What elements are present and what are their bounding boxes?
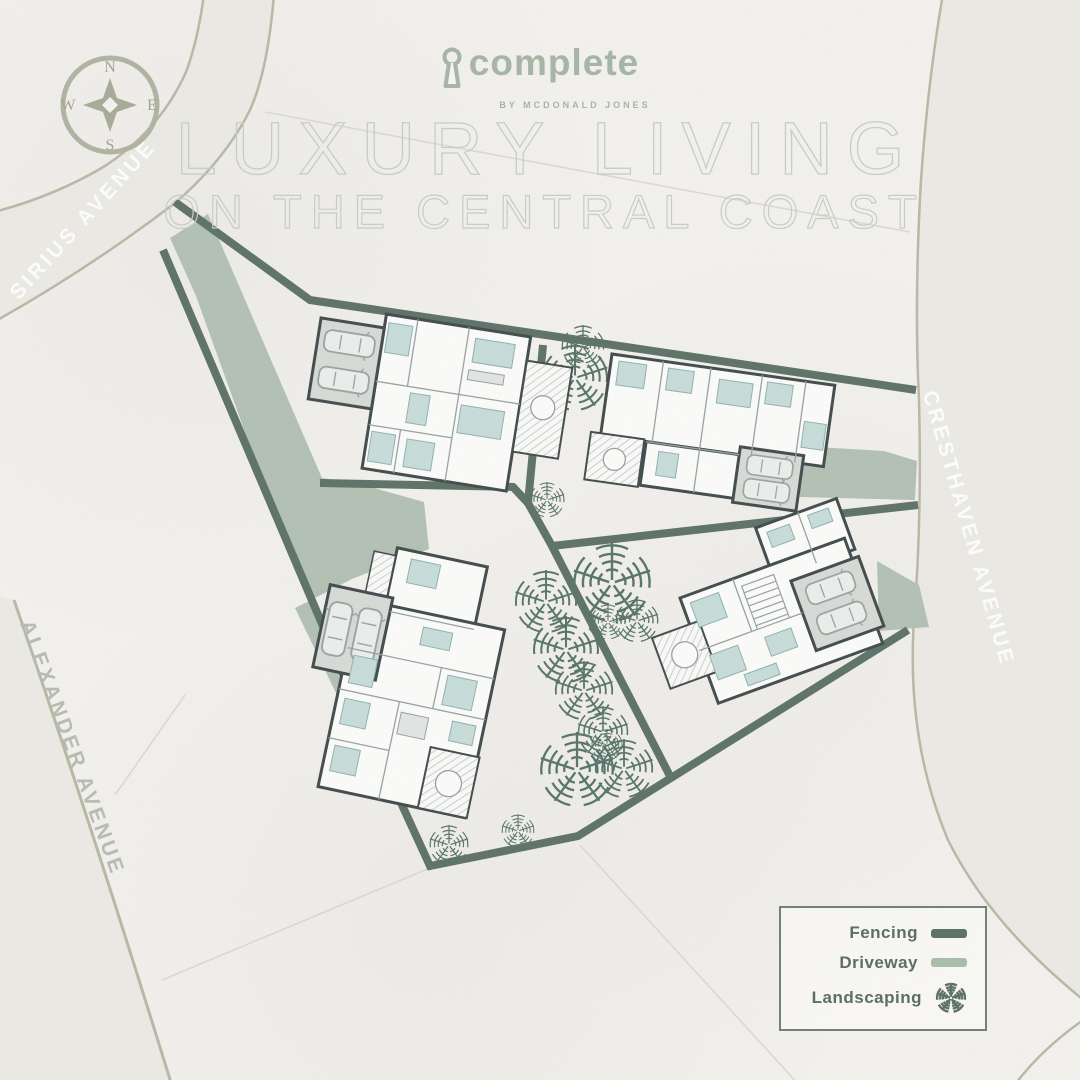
driveway-swatch-icon bbox=[931, 958, 967, 967]
site-plan-poster: { "header": { "logo": { "brand": "comple… bbox=[0, 0, 1080, 1080]
brand-byline: BY MCDONALD JONES bbox=[0, 100, 1080, 110]
legend: Fencing Driveway Landscaping bbox=[779, 906, 987, 1031]
legend-label-landscaping: Landscaping bbox=[812, 988, 922, 1008]
legend-label-fencing: Fencing bbox=[849, 923, 918, 943]
fencing-swatch-icon bbox=[931, 929, 967, 938]
legend-row-driveway: Driveway bbox=[791, 953, 967, 973]
landscaping-tree-icon bbox=[935, 982, 967, 1014]
legend-row-fencing: Fencing bbox=[791, 923, 967, 943]
legend-row-landscaping: Landscaping bbox=[791, 982, 967, 1014]
legend-label-driveway: Driveway bbox=[839, 953, 918, 973]
